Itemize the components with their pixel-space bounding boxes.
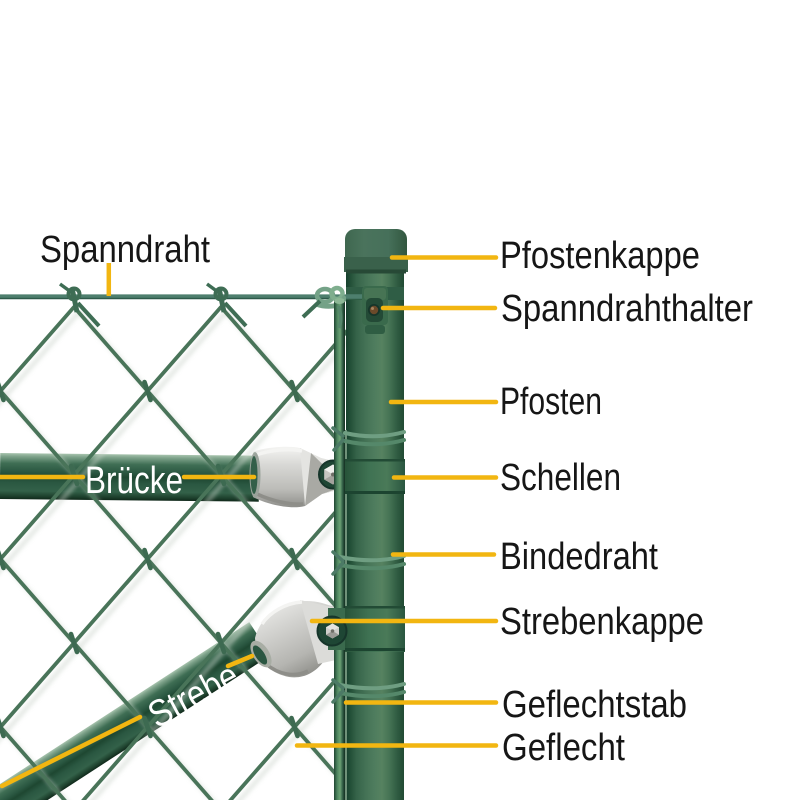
svg-text:Schellen: Schellen [500, 457, 621, 499]
svg-text:Spanndraht: Spanndraht [40, 229, 210, 271]
svg-text:Strebenkappe: Strebenkappe [500, 601, 704, 643]
svg-text:Geflechtstab: Geflechtstab [502, 684, 687, 726]
svg-text:Pfostenkappe: Pfostenkappe [500, 235, 700, 277]
svg-text:Bindedraht: Bindedraht [500, 536, 658, 578]
svg-text:Brücke: Brücke [85, 460, 183, 502]
svg-text:Geflecht: Geflecht [502, 727, 625, 769]
svg-text:Pfosten: Pfosten [500, 381, 602, 423]
svg-text:Spanndrahthalter: Spanndrahthalter [501, 288, 753, 330]
